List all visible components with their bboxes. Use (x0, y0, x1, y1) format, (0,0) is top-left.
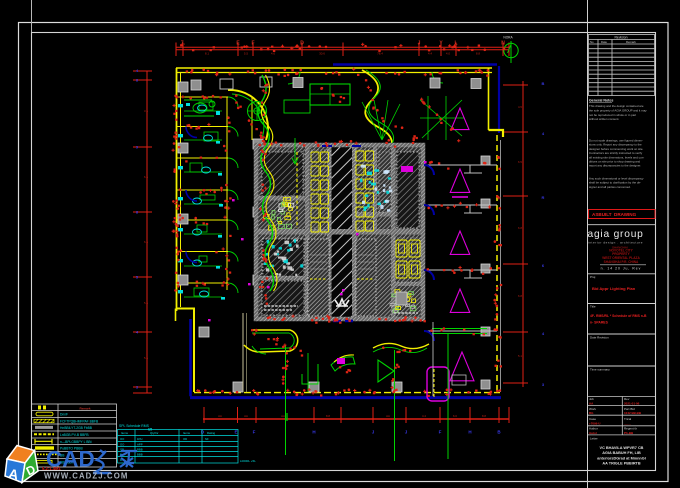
svg-text:Proj: Proj (590, 275, 596, 279)
svg-text:6.5: 6.5 (144, 240, 148, 244)
svg-text:Time summary: Time summary (590, 368, 610, 372)
svg-text:Bid Appr Lighting Plan: Bid Appr Lighting Plan (592, 286, 636, 291)
svg-text:Items: Items (183, 431, 190, 435)
svg-text:1042 BB.BB: 1042 BB.BB (624, 411, 642, 415)
svg-text:4.4: 4.4 (422, 414, 426, 418)
svg-text:D: D (300, 41, 304, 47)
svg-text:6.6: 6.6 (453, 414, 457, 418)
svg-text:8.8: 8.8 (476, 52, 481, 56)
svg-text:VC BHAVILA WPVR7 CB: VC BHAVILA WPVR7 CB (600, 446, 644, 450)
svg-text:F: F (251, 41, 254, 47)
svg-text:RG: RG (589, 411, 594, 415)
svg-text:signer and all parties concern: signer and all parties concerned. (589, 185, 631, 189)
svg-text:Remark: Remark (79, 406, 90, 410)
svg-text:AA: AA (386, 414, 390, 418)
svg-text:General Notes: General Notes (589, 99, 613, 103)
svg-text:agia group: agia group (588, 229, 644, 240)
svg-text:CAD: CAD (46, 447, 95, 472)
svg-text:without written consent.: without written consent. (589, 117, 619, 121)
svg-text:J: J (418, 41, 421, 47)
svg-text:Letter: Letter (590, 436, 598, 440)
svg-text:OD: OD (183, 437, 187, 441)
svg-text:5.5: 5.5 (144, 301, 148, 305)
svg-text:anteriorsDGrad at MmnnGl: anteriorsDGrad at MmnnGl (597, 456, 646, 460)
svg-text:BBB: BBB (137, 453, 143, 457)
svg-text:+7099 U: +7099 U (589, 421, 600, 425)
svg-text:AA: AA (281, 414, 285, 418)
svg-text:4.6: 4.6 (271, 52, 276, 56)
svg-text:6.8: 6.8 (518, 226, 522, 230)
svg-text:Items: Items (121, 431, 128, 435)
svg-text:FCFTPQBHMFPAF BBFB: FCFTPQBHMFPAF BBFB (60, 420, 99, 424)
svg-text:DnnF: DnnF (60, 412, 68, 416)
svg-text:6.5: 6.5 (518, 160, 522, 164)
svg-text:Ph-BB: Ph-BB (624, 431, 634, 435)
svg-text:report any discrepancies to th: report any discrepancies to the designer… (589, 164, 641, 168)
svg-text:30.6: 30.6 (319, 52, 325, 56)
svg-text:3.6: 3.6 (144, 109, 148, 113)
svg-text:n- SPARES: n- SPARES (590, 321, 609, 325)
svg-text:ASBUILT: ASBUILT (592, 212, 612, 217)
svg-text:N: N (501, 41, 505, 47)
svg-text:5.5: 5.5 (244, 52, 249, 56)
svg-text:AA: AA (218, 414, 222, 418)
svg-text:U5: U5 (148, 428, 152, 432)
svg-text:H: H (468, 430, 471, 435)
svg-text:Case: Case (589, 417, 596, 421)
svg-text:8.1: 8.1 (205, 52, 210, 56)
svg-text:APP: APP (137, 443, 143, 447)
svg-text:NF: NF (205, 437, 209, 441)
svg-text:8.8: 8.8 (326, 414, 330, 418)
svg-text:R: R (542, 195, 545, 200)
svg-text:4.5: 4.5 (518, 105, 522, 109)
svg-text:n—BPLGBBPY L BBt: n—BPLGBBPY L BBt (60, 440, 92, 444)
svg-text:AGIA BABUH FH, LIB: AGIA BABUH FH, LIB (602, 451, 641, 455)
svg-text:BBB: BBB (137, 448, 143, 452)
svg-text:5.5: 5.5 (144, 356, 148, 360)
svg-text:Title: Title (590, 305, 596, 309)
svg-text:6.8: 6.8 (518, 294, 522, 298)
svg-text:4.0: 4.0 (446, 52, 451, 56)
svg-text:Autol: Autol (589, 431, 597, 435)
svg-text:1PH: 1PH (137, 437, 142, 441)
svg-text:Revision: Revision (614, 35, 627, 39)
svg-text:interior design . architecture: interior design . architecture (588, 241, 643, 245)
svg-text:B: B (542, 81, 545, 86)
svg-text:AA: AA (244, 414, 248, 418)
svg-text:Remark: Remark (626, 40, 636, 44)
svg-text:Rating: Rating (207, 431, 216, 435)
svg-text:SHANGHAI P.R. CHINA: SHANGHAI P.R. CHINA (604, 260, 639, 264)
svg-text:78.4: 78.4 (377, 52, 383, 56)
svg-text:SPL Schedule RMS: SPL Schedule RMS (119, 424, 150, 428)
svg-text:H: H (312, 430, 315, 435)
svg-text:6.5: 6.5 (144, 175, 148, 179)
svg-text:NORA: NORA (503, 36, 513, 40)
svg-text:5.1: 5.1 (518, 354, 522, 358)
svg-text:LnBGB PV-B BBFB: LnBGB PV-B BBFB (60, 433, 89, 437)
svg-text:AA TRIGLE PBBIRTB: AA TRIGLE PBBIRTB (602, 462, 641, 466)
svg-text:........: ........ (624, 421, 631, 425)
svg-text:n. 14 20 Ju, Rev: n. 14 20 Ju, Rev (601, 266, 642, 270)
svg-text:4F- RMS/RL * Schedule of RMS n: 4F- RMS/RL * Schedule of RMS n-B (590, 314, 647, 318)
svg-text:L0000L +5L: L0000L +5L (240, 459, 256, 463)
svg-text:WWW.CADZJ.COM: WWW.CADZJ.COM (44, 472, 128, 481)
svg-text:HnBBILYT-2GB FbBB: HnBBILYT-2GB FbBB (60, 426, 93, 430)
svg-text:E: E (234, 430, 237, 435)
svg-text:No: No (590, 40, 594, 44)
svg-text:8.8: 8.8 (482, 414, 486, 418)
svg-text:F: F (253, 430, 256, 435)
svg-text:Trical: Trical (624, 417, 632, 421)
svg-text:Date: Date (601, 40, 607, 44)
svg-text:4.4: 4.4 (428, 52, 433, 56)
svg-text:2021-01-06: 2021-01-06 (624, 401, 640, 405)
svg-text:DRAWING: DRAWING (614, 212, 637, 217)
svg-text:F: F (439, 430, 442, 435)
svg-text:Date Revision: Date Revision (590, 336, 609, 340)
